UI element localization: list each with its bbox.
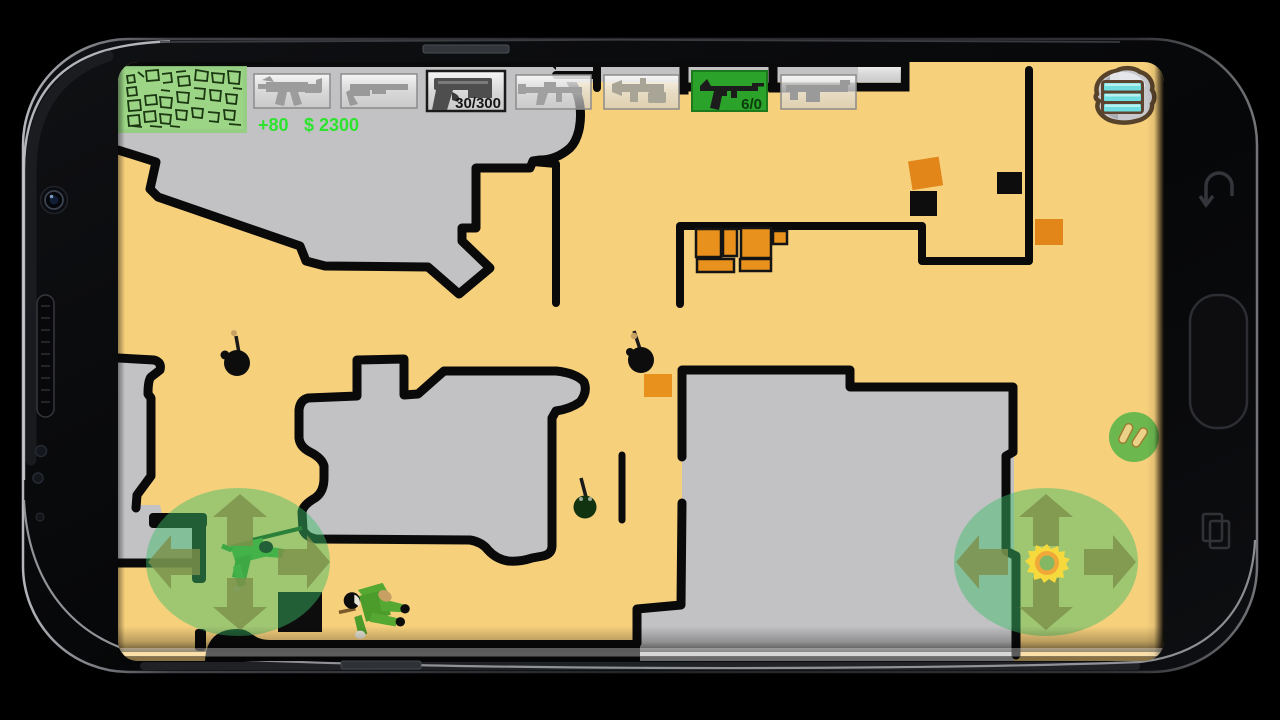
svg-text:$ 2300: $ 2300 xyxy=(304,115,359,135)
svg-text:6/0: 6/0 xyxy=(741,96,762,113)
svg-text:30/300: 30/300 xyxy=(455,95,501,112)
svg-text:+80: +80 xyxy=(258,115,289,135)
